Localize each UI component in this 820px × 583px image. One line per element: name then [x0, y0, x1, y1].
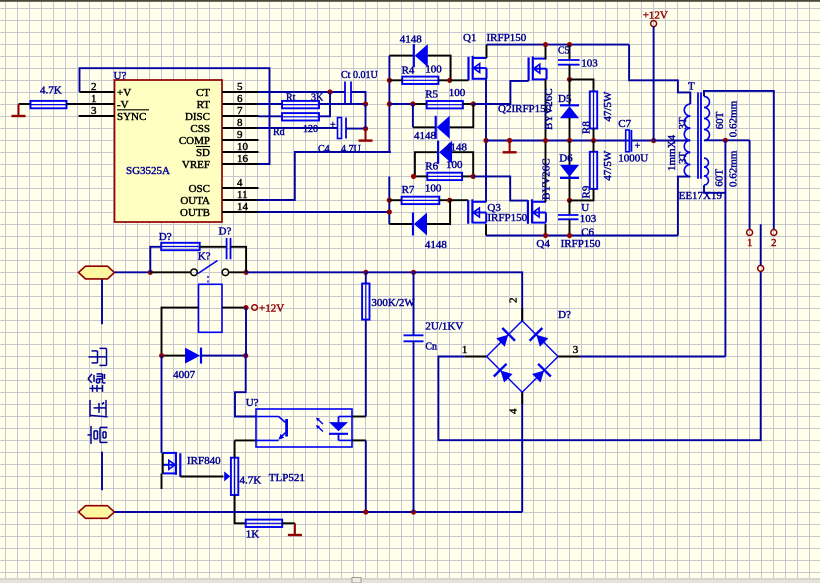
svg-text:R8: R8: [581, 121, 593, 134]
svg-text:47/5W: 47/5W: [602, 150, 614, 181]
svg-text:VREF: VREF: [182, 159, 210, 171]
svg-text:4.7K: 4.7K: [40, 85, 62, 97]
svg-text:0.62mm: 0.62mm: [728, 100, 740, 137]
svg-text:Ct 0.01U: Ct 0.01U: [341, 70, 378, 81]
svg-text:2: 2: [771, 237, 777, 249]
svg-text:4148: 4148: [400, 34, 423, 46]
svg-text:SD: SD: [196, 147, 210, 159]
svg-text:103: 103: [581, 58, 598, 70]
svg-text:100: 100: [449, 87, 466, 99]
svg-text:C4: C4: [318, 144, 330, 155]
svg-text:47/5W: 47/5W: [602, 91, 614, 122]
svg-text:OSC: OSC: [189, 183, 210, 195]
svg-text:U?: U?: [246, 397, 259, 409]
svg-text:4148: 4148: [445, 142, 468, 154]
svg-text:4.7U: 4.7U: [341, 144, 362, 155]
svg-text:U?: U?: [114, 70, 127, 82]
svg-text:BYV26C: BYV26C: [541, 158, 553, 200]
svg-text:60T: 60T: [714, 111, 726, 129]
svg-text:3T: 3T: [677, 117, 689, 130]
svg-text:D5: D5: [558, 93, 572, 105]
svg-text:R6: R6: [425, 161, 438, 173]
svg-text:TLP521: TLP521: [269, 472, 305, 484]
svg-text:+: +: [635, 141, 641, 152]
svg-text:R5: R5: [425, 89, 438, 101]
svg-text:Cn: Cn: [425, 342, 437, 353]
svg-text:6: 6: [237, 93, 243, 105]
svg-text:5: 5: [237, 81, 243, 93]
svg-text:3: 3: [91, 105, 97, 117]
svg-text:1mmX4: 1mmX4: [666, 134, 678, 171]
svg-text:COMP: COMP: [179, 135, 210, 147]
svg-text:4: 4: [508, 408, 520, 414]
svg-text:9: 9: [237, 129, 243, 141]
svg-text:Rt: Rt: [286, 93, 296, 104]
svg-text:300K/2W: 300K/2W: [371, 297, 415, 309]
svg-text:D?: D?: [558, 309, 571, 321]
svg-text:1: 1: [91, 93, 97, 105]
svg-text:8: 8: [237, 117, 243, 129]
svg-text:-V: -V: [117, 99, 129, 111]
svg-text:16: 16: [237, 153, 249, 165]
svg-text:IRFP150: IRFP150: [487, 212, 527, 224]
svg-text:3T: 3T: [677, 152, 689, 165]
svg-text:Q1: Q1: [463, 32, 476, 44]
svg-text:2: 2: [91, 81, 97, 93]
svg-text:EE17X19: EE17X19: [679, 190, 723, 202]
svg-text:Q4: Q4: [536, 238, 550, 250]
svg-text:100: 100: [425, 64, 442, 76]
svg-text:4148: 4148: [414, 130, 437, 142]
svg-text:0.62mm: 0.62mm: [728, 150, 740, 187]
svg-text:D?: D?: [159, 231, 172, 243]
svg-text:120: 120: [303, 124, 318, 135]
svg-text:103: 103: [580, 213, 597, 225]
svg-text:IRFP150: IRFP150: [561, 238, 601, 250]
svg-text:3: 3: [573, 344, 579, 356]
svg-text:2: 2: [508, 298, 520, 304]
svg-text:7: 7: [237, 105, 243, 117]
svg-text:+12V: +12V: [643, 10, 668, 22]
svg-text:BYV26C: BYV26C: [543, 88, 555, 130]
svg-text:RT: RT: [197, 99, 211, 111]
svg-text:100: 100: [446, 159, 463, 171]
svg-text:1: 1: [462, 344, 468, 356]
svg-text:C5: C5: [558, 46, 570, 57]
svg-text:1K: 1K: [246, 529, 260, 541]
svg-text:R9: R9: [581, 185, 593, 198]
svg-text:OUTB: OUTB: [180, 207, 210, 219]
svg-text:1: 1: [747, 237, 753, 249]
svg-text:C6: C6: [581, 227, 594, 239]
svg-text:K?: K?: [198, 251, 211, 263]
svg-text:60T: 60T: [714, 169, 726, 187]
svg-text:DISC: DISC: [185, 111, 210, 123]
svg-text:C7: C7: [618, 118, 631, 130]
svg-text:D?: D?: [219, 226, 232, 238]
svg-text:Rd: Rd: [273, 127, 285, 138]
svg-text:3K: 3K: [311, 93, 324, 104]
svg-text:4.7K: 4.7K: [240, 475, 262, 487]
svg-text:14: 14: [237, 201, 249, 213]
svg-text:100: 100: [425, 183, 442, 195]
svg-text:IRFP150: IRFP150: [487, 32, 527, 44]
svg-text:CSS: CSS: [190, 123, 210, 135]
svg-text:10: 10: [237, 141, 249, 153]
svg-text:+V: +V: [117, 87, 131, 99]
svg-text:SYNC: SYNC: [117, 111, 146, 123]
svg-text:IRF840: IRF840: [187, 455, 221, 467]
svg-text:1000U: 1000U: [618, 152, 648, 164]
svg-text:4148: 4148: [425, 239, 448, 251]
svg-text:T: T: [688, 81, 695, 93]
svg-text:R7: R7: [402, 184, 415, 196]
svg-text:CT: CT: [196, 87, 210, 99]
svg-text:4007: 4007: [173, 369, 196, 381]
svg-text:+12V: +12V: [259, 303, 284, 315]
svg-text:OUTA: OUTA: [180, 195, 210, 207]
svg-text:2U/1KV: 2U/1KV: [425, 321, 463, 333]
svg-text:D6: D6: [559, 153, 573, 165]
svg-text:R4: R4: [402, 65, 415, 77]
svg-text:SG3525A: SG3525A: [126, 165, 170, 177]
svg-text:+: +: [330, 120, 336, 131]
svg-text:11: 11: [237, 189, 248, 201]
svg-text:4: 4: [237, 177, 243, 189]
